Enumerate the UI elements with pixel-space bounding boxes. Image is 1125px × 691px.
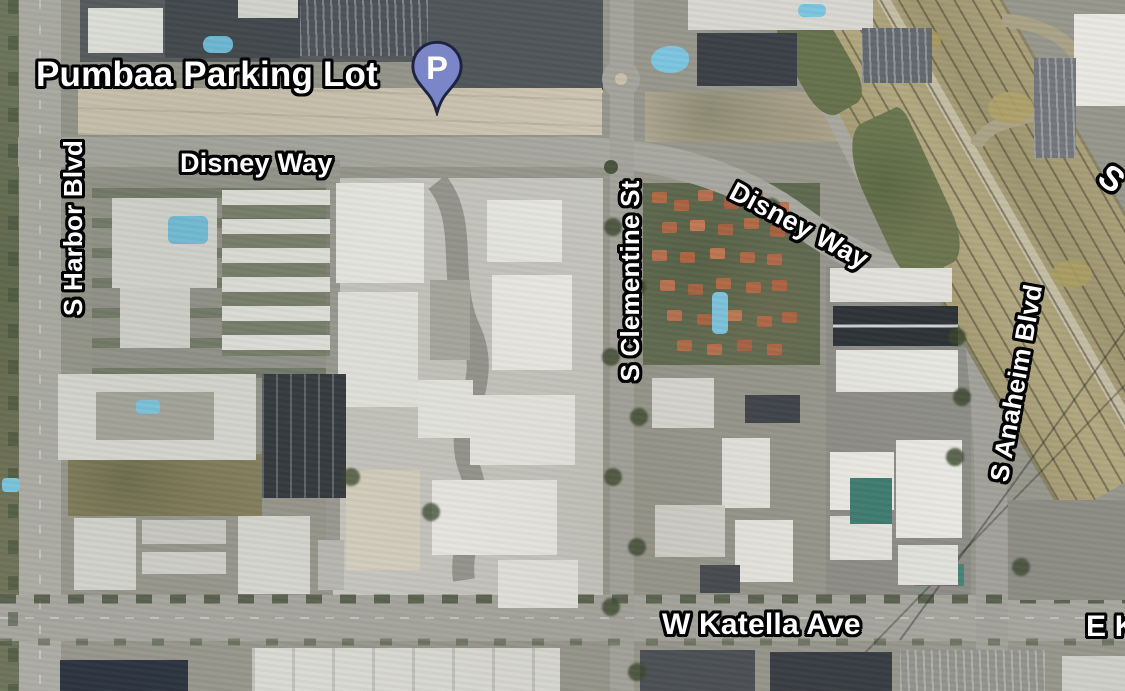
road-label-katella-ave-east: E Ka [1086, 612, 1125, 642]
building [338, 292, 418, 407]
building [238, 516, 310, 594]
courtyard [430, 280, 470, 360]
building [640, 650, 755, 691]
building [498, 560, 578, 608]
building-solar-roof [60, 660, 188, 691]
building [770, 652, 892, 691]
building [722, 438, 770, 508]
building [830, 268, 952, 302]
building [74, 518, 136, 590]
road-label-harbor-blvd: S Harbor Blvd [60, 140, 86, 316]
building [1062, 656, 1125, 691]
building [700, 565, 740, 593]
building-teal-roof [850, 478, 892, 524]
building [142, 520, 226, 544]
building [655, 505, 725, 557]
pool [712, 292, 728, 334]
map-canvas[interactable]: Pumbaa Parking Lot Disney Way Disney Way… [0, 0, 1125, 691]
building [898, 545, 958, 585]
building [487, 200, 562, 262]
pool [2, 478, 20, 492]
parking-pin[interactable]: P [410, 40, 464, 116]
building [336, 183, 424, 283]
condo-roofs [652, 192, 667, 203]
building [470, 395, 575, 465]
tree-blobs [604, 160, 618, 174]
building [252, 648, 560, 691]
building [735, 520, 793, 582]
building [896, 440, 962, 538]
building [262, 374, 346, 498]
road-label-katella-ave-west: W Katella Ave [662, 610, 861, 640]
building [142, 552, 226, 574]
building [346, 470, 420, 570]
road-label-disney-way-west: Disney Way [180, 150, 333, 177]
building [418, 380, 473, 438]
building [492, 275, 572, 370]
building [833, 306, 958, 346]
building [318, 540, 344, 590]
building [432, 480, 557, 555]
road-label-clementine-st: S Clementine St [617, 181, 643, 382]
pool [136, 400, 160, 414]
poi-label-pumbaa-parking-lot[interactable]: Pumbaa Parking Lot [36, 57, 378, 92]
pin-letter: P [426, 49, 448, 86]
building [652, 378, 714, 428]
building [745, 395, 800, 423]
building [836, 350, 958, 392]
parking-with-cars [900, 650, 1045, 691]
